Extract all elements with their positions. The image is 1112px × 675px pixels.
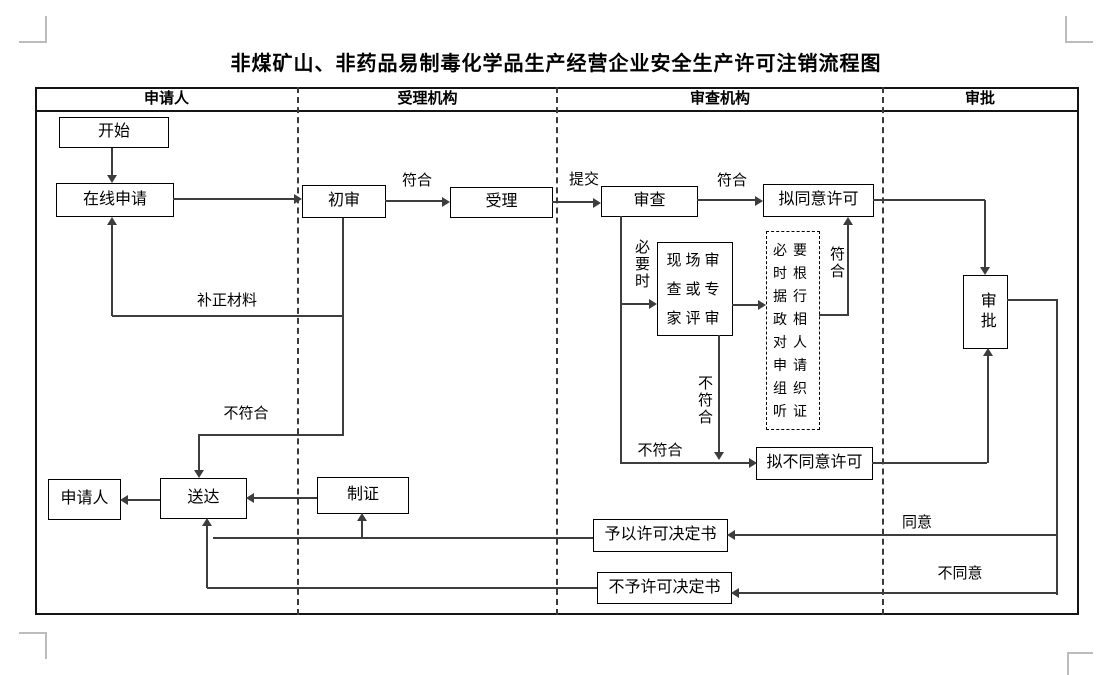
flow-connector-line xyxy=(385,200,443,202)
flow-connector-line xyxy=(697,199,756,201)
flow-connector-line xyxy=(984,200,986,268)
arrowhead-d xyxy=(980,267,990,275)
flow-connector-line xyxy=(552,201,594,203)
page-corner-crop-mark xyxy=(1065,16,1067,43)
edge-label-when-necessary: 必要时 xyxy=(631,226,652,302)
page-corner-crop-mark xyxy=(19,632,47,634)
page-corner-crop-mark xyxy=(1065,41,1093,43)
flow-connector-line xyxy=(112,315,344,317)
edge-label-conform-hearing: 符合 xyxy=(826,240,847,286)
arrowhead-r xyxy=(442,197,450,207)
node-online-apply: 在线申请 xyxy=(56,183,174,217)
node-review: 审查 xyxy=(601,186,698,217)
flow-connector-line xyxy=(1056,299,1058,595)
approve-text: 审批 xyxy=(976,292,994,332)
flow-connector-line xyxy=(198,434,344,436)
flow-connector-line xyxy=(198,436,200,472)
arrowhead-r xyxy=(758,300,766,310)
lane-header-approval: 审批 xyxy=(883,89,1077,109)
lane-divider-2 xyxy=(556,87,558,615)
page-title: 非煤矿山、非药品易制毒化学品生产经营企业安全生产许可注销流程图 xyxy=(0,47,1112,76)
node-hearing: 必要时根据行政相对人申请组织听证 xyxy=(766,231,820,430)
flow-connector-line xyxy=(207,587,597,589)
arrowhead-r xyxy=(755,196,763,206)
edge-label-nonconform-review: 不符合 xyxy=(634,439,686,460)
node-propose-approve: 拟同意许可 xyxy=(763,184,874,217)
arrowhead-u xyxy=(357,513,367,521)
flow-connector-line xyxy=(847,224,849,316)
flow-connector-line xyxy=(361,520,363,538)
edge-label-submit: 提交 xyxy=(560,168,608,189)
flow-connector-line xyxy=(342,218,344,436)
arrowhead-u xyxy=(843,217,853,225)
flow-connector-line xyxy=(718,335,720,453)
lane-header-accepting: 受理机构 xyxy=(298,89,557,109)
node-start: 开始 xyxy=(59,117,169,148)
flow-connector-line xyxy=(620,462,750,464)
node-onsite-review: 现场审查或专家评审 xyxy=(657,242,733,336)
arrowhead-l xyxy=(246,493,254,503)
node-propose-deny: 拟不同意许可 xyxy=(756,447,873,480)
arrowhead-r xyxy=(593,198,601,208)
arrowhead-d xyxy=(194,470,204,478)
flow-connector-line xyxy=(987,355,989,463)
node-make-certificate: 制证 xyxy=(317,477,409,514)
arrowhead-d xyxy=(107,175,117,183)
flow-connector-line xyxy=(1007,299,1057,301)
edge-label-conform-review: 符合 xyxy=(708,169,756,190)
flow-connector-line xyxy=(253,497,317,499)
lane-header-reviewing: 审查机构 xyxy=(557,89,883,109)
edge-label-nonconform-onsite: 不符合 xyxy=(694,371,715,429)
page-corner-crop-mark xyxy=(1067,652,1093,654)
page-corner-crop-mark xyxy=(1067,652,1069,675)
arrowhead-l xyxy=(727,530,735,540)
edge-label-disagree: 不同意 xyxy=(934,562,986,583)
arrowhead-u xyxy=(983,348,993,356)
document-page: 非煤矿山、非药品易制毒化学品生产经营企业安全生产许可注销流程图 申请人 受理机构… xyxy=(0,0,1112,675)
node-accept: 受理 xyxy=(450,187,553,218)
node-deny-decision: 不予许可决定书 xyxy=(597,572,732,604)
arrowhead-r xyxy=(649,299,657,309)
flow-connector-line xyxy=(734,534,1057,536)
flow-connector-line xyxy=(173,198,295,200)
node-deliver: 送达 xyxy=(160,478,247,519)
arrowhead-r xyxy=(749,458,757,468)
flow-connector-line xyxy=(620,216,622,464)
edge-label-supplement-materials: 补正材料 xyxy=(194,289,260,310)
arrowhead-u xyxy=(107,217,117,225)
edge-label-agree: 同意 xyxy=(899,511,935,532)
flow-connector-line xyxy=(127,499,160,501)
flow-connector-line xyxy=(873,199,985,201)
arrowhead-l xyxy=(120,495,128,505)
arrowhead-l xyxy=(731,588,739,598)
node-initial-review: 初审 xyxy=(302,185,386,218)
flow-connector-line xyxy=(111,148,113,178)
flow-connector-line xyxy=(732,304,759,306)
flow-connector-line xyxy=(872,462,987,464)
hearing-text: 必要时根据行政相对人申请组织听证 xyxy=(767,233,819,429)
lane-divider-1 xyxy=(297,87,299,615)
edge-label-conform-initial: 符合 xyxy=(393,169,441,190)
onsite-review-text: 现场审查或专家评审 xyxy=(658,244,732,335)
node-grant-decision: 予以许可决定书 xyxy=(593,519,728,552)
arrowhead-r xyxy=(294,194,302,204)
page-corner-crop-mark xyxy=(19,41,47,43)
page-corner-crop-mark xyxy=(45,632,47,659)
flow-connector-line xyxy=(111,224,113,316)
flow-connector-line xyxy=(819,314,848,316)
flow-connector-line xyxy=(738,592,1057,594)
flow-connector-line xyxy=(620,303,650,305)
edge-label-nonconform-initial: 不符合 xyxy=(221,402,271,423)
flow-connector-line xyxy=(213,537,593,539)
page-corner-crop-mark xyxy=(45,16,47,43)
arrowhead-d xyxy=(714,452,724,460)
arrowhead-u xyxy=(202,518,212,526)
lane-header-applicant: 申请人 xyxy=(35,89,298,109)
node-approve: 审批 xyxy=(963,275,1008,349)
flow-connector-line xyxy=(206,525,208,588)
node-applicant: 申请人 xyxy=(48,479,121,520)
